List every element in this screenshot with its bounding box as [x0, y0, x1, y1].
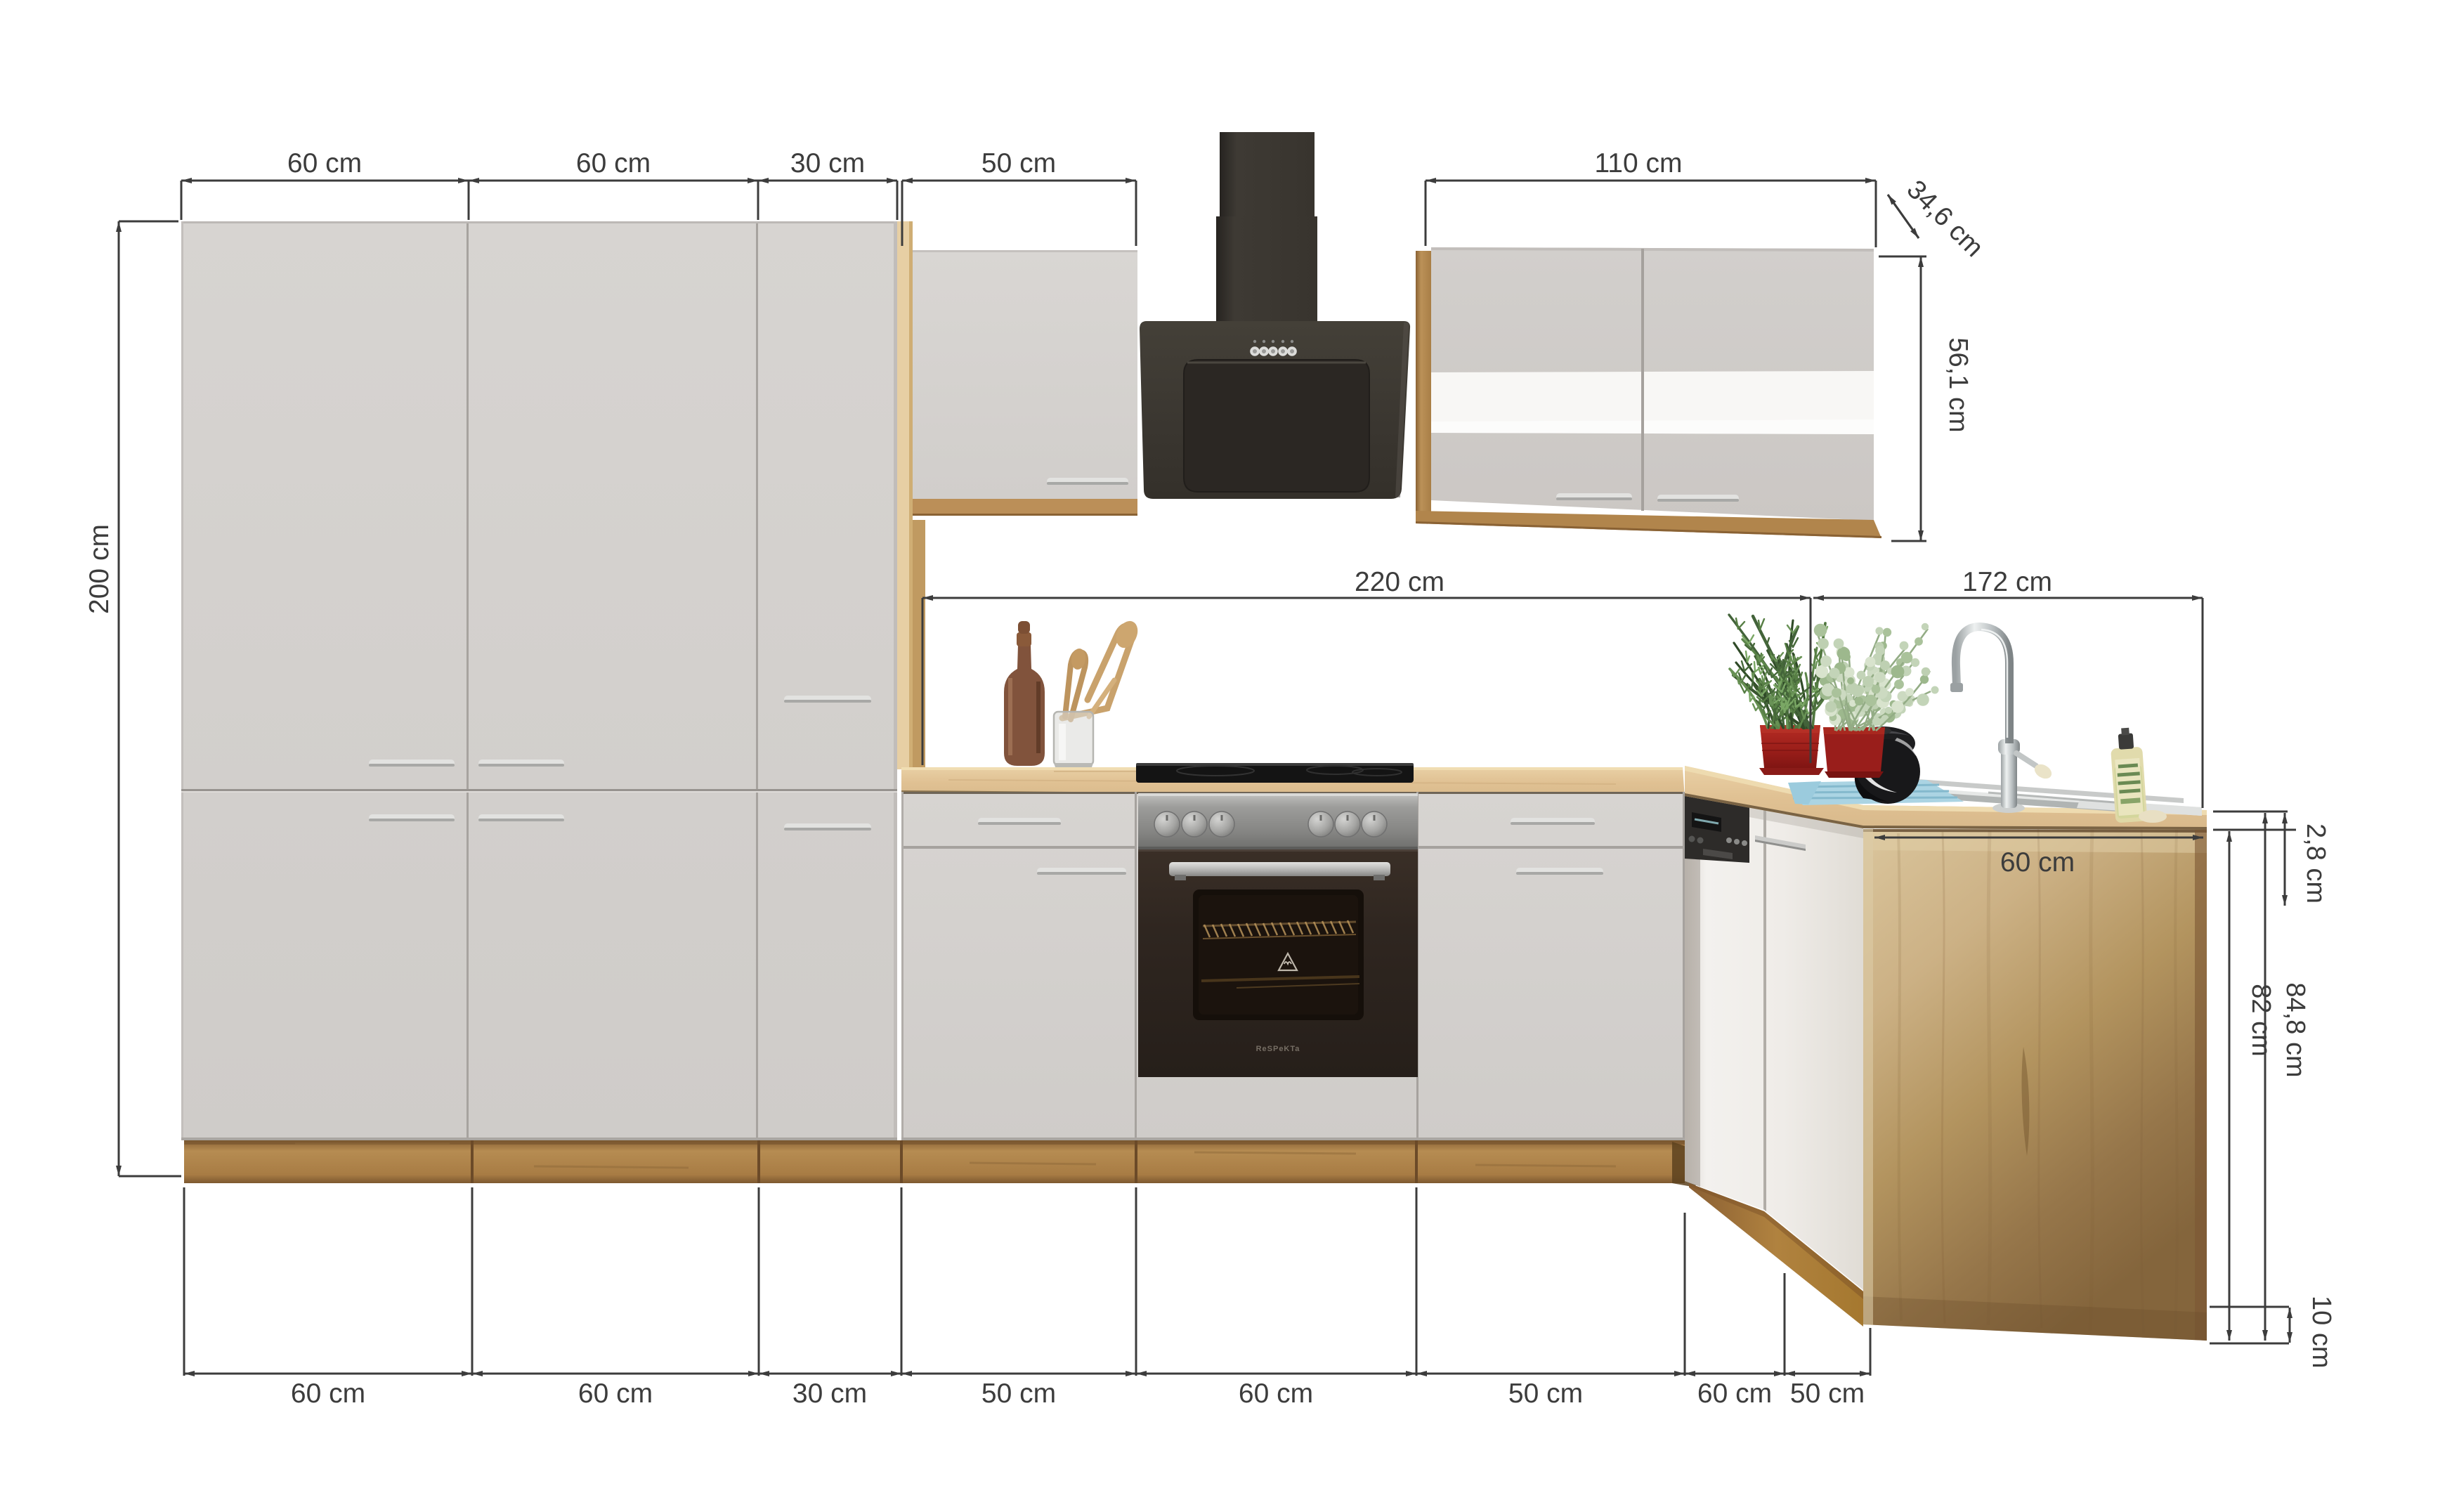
svg-text:56,1 cm: 56,1 cm: [1943, 337, 1973, 432]
svg-text:60 cm: 60 cm: [2000, 847, 2075, 878]
svg-text:50 cm: 50 cm: [1790, 1379, 1865, 1409]
svg-text:ReSPeKTa: ReSPeKTa: [1256, 1045, 1300, 1053]
svg-text:10 cm: 10 cm: [2307, 1296, 2336, 1368]
svg-text:220 cm: 220 cm: [1355, 567, 1444, 597]
svg-text:84,8 cm: 84,8 cm: [2281, 982, 2310, 1077]
svg-text:60 cm: 60 cm: [287, 148, 362, 178]
svg-text:30 cm: 30 cm: [790, 148, 865, 178]
svg-text:60 cm: 60 cm: [291, 1379, 365, 1409]
svg-text:82 cm: 82 cm: [2246, 984, 2276, 1056]
svg-text:110 cm: 110 cm: [1595, 148, 1683, 178]
svg-text:30 cm: 30 cm: [793, 1379, 867, 1409]
svg-text:60 cm: 60 cm: [578, 1379, 653, 1409]
svg-text:200 cm: 200 cm: [84, 524, 115, 614]
svg-text:60 cm: 60 cm: [1697, 1379, 1772, 1409]
svg-text:60 cm: 60 cm: [576, 148, 651, 178]
svg-text:50 cm: 50 cm: [1508, 1379, 1583, 1409]
svg-text:50 cm: 50 cm: [981, 148, 1056, 178]
svg-text:2,8 cm: 2,8 cm: [2301, 823, 2330, 904]
svg-text:172 cm: 172 cm: [1962, 567, 2052, 597]
svg-text:50 cm: 50 cm: [981, 1379, 1056, 1409]
svg-text:60 cm: 60 cm: [1239, 1379, 1313, 1409]
